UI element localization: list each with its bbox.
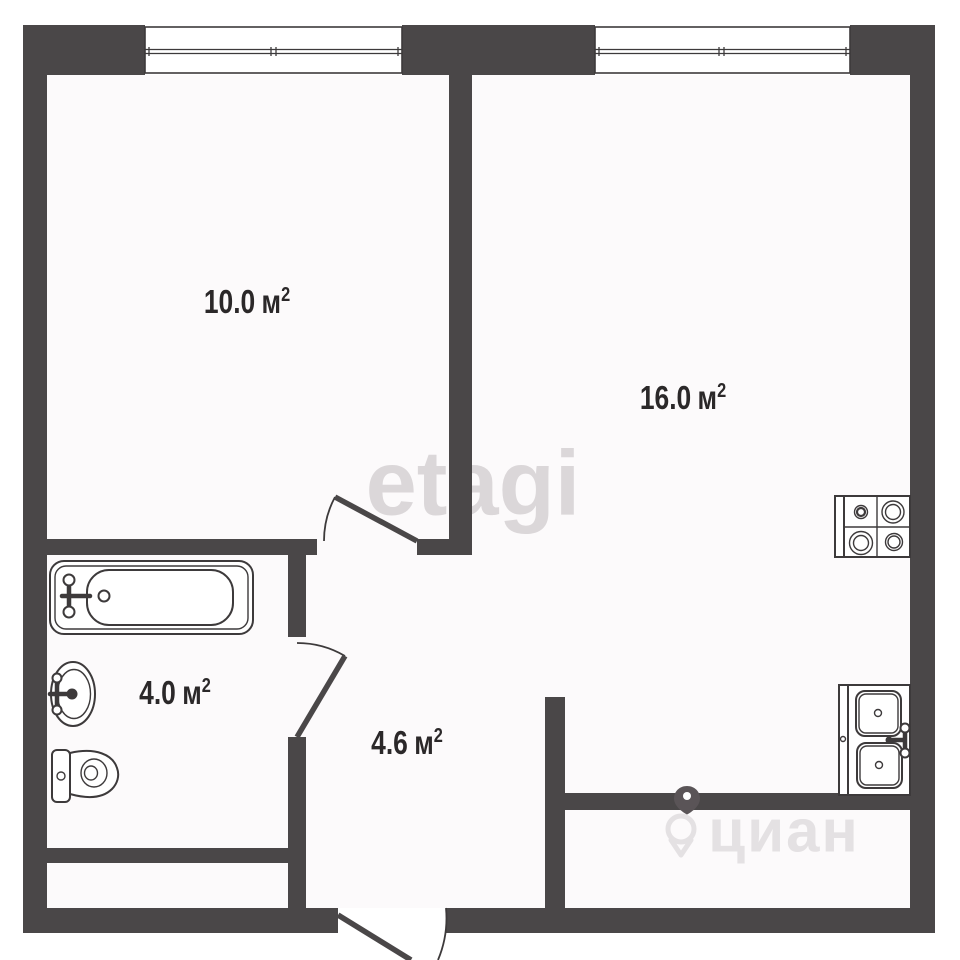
door-swing-arc bbox=[324, 497, 335, 541]
door-leaf bbox=[297, 656, 345, 737]
wall-bathroom-right-upper bbox=[288, 555, 306, 637]
area-value: 4.0 bbox=[139, 674, 176, 711]
room-10-area-label: 10.0м2 bbox=[204, 283, 290, 321]
hallway-area-label: 4.6м2 bbox=[371, 724, 443, 762]
door-room10 bbox=[324, 497, 417, 541]
area-unit: м bbox=[262, 283, 282, 320]
wall-middle-vertical bbox=[449, 75, 472, 555]
door-swing-arc bbox=[438, 908, 446, 960]
wall-top-middle-segment bbox=[402, 25, 595, 75]
wall-hall-top-stub bbox=[417, 539, 449, 555]
door-leaf bbox=[335, 497, 417, 541]
area-value: 16.0 bbox=[640, 379, 691, 416]
kitchen-sink-icon bbox=[839, 685, 910, 795]
floorplan: etagi циан bbox=[0, 0, 960, 960]
window-1 bbox=[145, 27, 402, 73]
door-bathroom bbox=[297, 643, 345, 737]
wall-bottom-left-segment bbox=[23, 908, 338, 933]
area-unit: м bbox=[182, 674, 202, 711]
area-superscript: 2 bbox=[281, 283, 290, 306]
area-unit: м bbox=[414, 724, 434, 761]
washbasin-icon bbox=[50, 662, 95, 726]
wall-right bbox=[910, 25, 935, 933]
area-superscript: 2 bbox=[717, 379, 726, 402]
wall-bathroom-right-lower bbox=[288, 737, 306, 908]
toilet-icon bbox=[52, 750, 118, 802]
wall-bathroom-bottom bbox=[47, 848, 288, 863]
floorplan-canvas bbox=[0, 0, 960, 960]
bathroom-area-label: 4.0м2 bbox=[139, 674, 211, 712]
area-unit: м bbox=[698, 379, 718, 416]
map-pin-icon bbox=[674, 786, 700, 815]
wall-hall-right bbox=[545, 697, 565, 908]
wall-bottom-right-segment bbox=[446, 908, 935, 933]
area-superscript: 2 bbox=[202, 674, 211, 697]
window-2 bbox=[595, 27, 850, 73]
bathtub-icon bbox=[50, 561, 253, 634]
interior-walls bbox=[47, 75, 910, 908]
stove-icon bbox=[835, 496, 910, 557]
wall-room10-bottom bbox=[47, 539, 317, 555]
area-value: 10.0 bbox=[204, 283, 255, 320]
door-entrance bbox=[338, 908, 446, 960]
map-pin-outline-icon bbox=[668, 816, 694, 855]
wall-left bbox=[23, 25, 47, 933]
door-swing-arc bbox=[297, 643, 345, 656]
area-value: 4.6 bbox=[371, 724, 408, 761]
room-16-area-label: 16.0м2 bbox=[640, 379, 726, 417]
door-leaf bbox=[338, 915, 411, 960]
area-superscript: 2 bbox=[434, 724, 443, 747]
